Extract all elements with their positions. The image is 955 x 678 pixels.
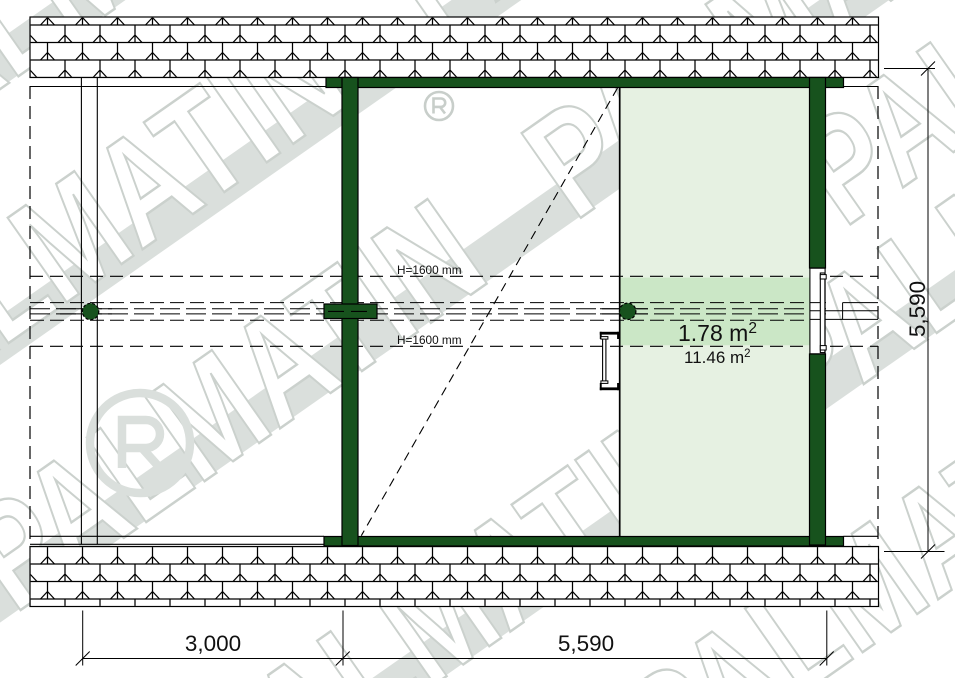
svg-text:11.46 m2: 11.46 m2 xyxy=(684,348,751,367)
svg-text:5,590: 5,590 xyxy=(558,631,614,656)
svg-text:H=1600 mm: H=1600 mm xyxy=(397,263,462,277)
svg-text:3,000: 3,000 xyxy=(185,631,241,656)
svg-text:H=1600 mm: H=1600 mm xyxy=(397,333,462,347)
svg-text:5,590: 5,590 xyxy=(905,281,930,337)
svg-text:1.78 m2: 1.78 m2 xyxy=(678,320,757,346)
